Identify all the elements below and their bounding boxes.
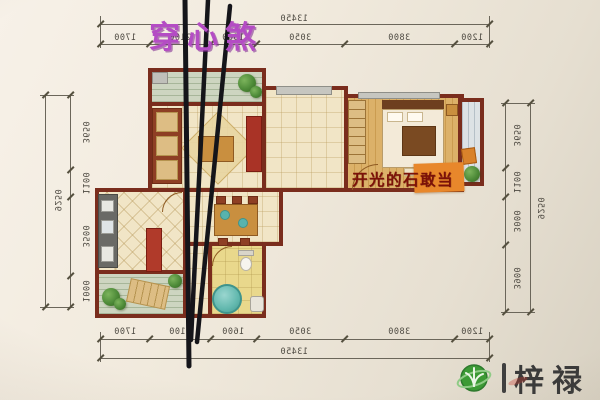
toilet-tank — [238, 250, 254, 256]
sofa-cushion — [156, 112, 178, 132]
dining-chair — [232, 196, 242, 204]
sha-lines — [0, 0, 600, 400]
toilet-bowl — [240, 257, 252, 271]
plant-right-balcony — [464, 166, 480, 182]
kitchen-sink — [101, 200, 114, 212]
hall-window — [276, 86, 332, 95]
dim-line — [100, 339, 489, 340]
dining-chair — [248, 196, 258, 204]
dim-label: 3800 — [369, 33, 429, 43]
bed-headboard — [382, 100, 444, 109]
coffee-table — [198, 136, 234, 162]
dim-label-left-total: 9250 — [52, 170, 62, 230]
dim-label: 1200 — [442, 33, 502, 43]
dim-label: 1000 — [80, 261, 90, 321]
dim-label: 3900 — [511, 248, 521, 308]
dim-label: 2100 — [150, 327, 210, 337]
dim-label: 3050 — [270, 327, 330, 337]
plant-bottom-balcony-3 — [168, 274, 182, 288]
dim-label: 3050 — [270, 33, 330, 43]
kitchen-stove — [101, 220, 114, 234]
dim-label: 1700 — [95, 327, 155, 337]
plant-bottom-balcony-2 — [114, 298, 126, 310]
dining-chair — [216, 196, 226, 204]
dining-chair — [240, 238, 250, 246]
plant-top-balcony-2 — [250, 86, 262, 98]
bed-blanket — [402, 126, 436, 156]
dim-label-top-total: 13450 — [264, 14, 324, 24]
dining-chair — [218, 238, 228, 246]
sofa-cushion — [156, 136, 178, 156]
dim-line — [505, 103, 506, 312]
dim-label: 3500 — [80, 206, 90, 266]
dining-plate — [238, 218, 248, 228]
bed-pillow — [407, 112, 423, 122]
caption-text: 开光的石敢当 — [352, 168, 454, 190]
dining-plate — [220, 210, 230, 220]
photo-vignette — [0, 0, 600, 400]
dim-line — [100, 358, 489, 359]
watermark-logo-icon — [456, 360, 492, 396]
watermark: 梓禄 — [456, 356, 590, 400]
bathroom-sink — [250, 296, 264, 312]
tv-cabinet — [246, 116, 262, 172]
room-hall — [262, 86, 348, 192]
dim-label: 1600 — [203, 327, 263, 337]
dim-line — [530, 103, 531, 312]
dim-label: 1700 — [95, 33, 155, 43]
dim-label: 3000 — [511, 191, 521, 251]
wardrobe — [348, 100, 366, 164]
dim-label: 1100 — [80, 153, 90, 213]
dim-label-right-total: 9250 — [535, 178, 545, 238]
sha-title-text: 穿心煞 — [149, 12, 263, 57]
nightstand — [446, 104, 458, 116]
kitchen-appliance — [101, 246, 114, 262]
ac-unit — [152, 72, 168, 84]
dim-label: 3800 — [369, 327, 429, 337]
dim-line — [45, 95, 46, 307]
kitchen-island — [146, 228, 162, 272]
dining-table — [214, 204, 258, 236]
dim-label: 1200 — [442, 327, 502, 337]
bathtub — [212, 284, 242, 314]
bedroom-window — [358, 92, 440, 99]
watermark-divider — [502, 363, 506, 393]
screenshot-stage: 13450 1700 2100 1600 3050 3800 1200 1700… — [0, 0, 600, 400]
bed-pillow — [387, 112, 403, 122]
dim-label-bottom-total: 13450 — [264, 347, 324, 357]
sofa-cushion — [156, 160, 178, 180]
